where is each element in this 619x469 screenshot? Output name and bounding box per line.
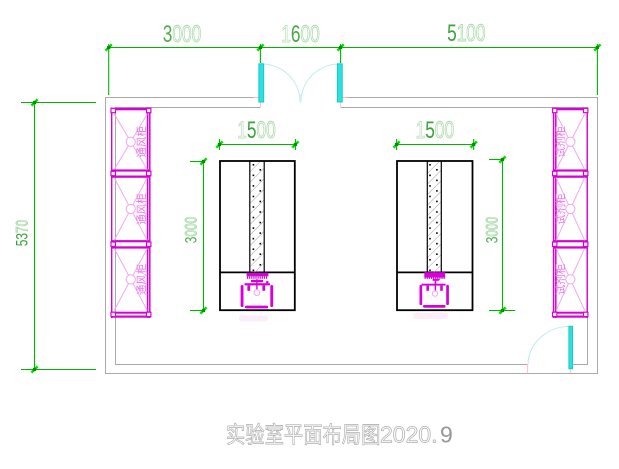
svg-text:3000: 3000 xyxy=(484,217,502,243)
svg-text:通风柜: 通风柜 xyxy=(135,126,148,158)
svg-text:1500: 1500 xyxy=(237,117,275,143)
svg-text:3000: 3000 xyxy=(163,21,201,47)
svg-text:试剂柜: 试剂柜 xyxy=(554,126,567,158)
svg-text:1600: 1600 xyxy=(281,21,319,47)
svg-text:通风柜: 通风柜 xyxy=(135,264,148,296)
svg-text:试剂柜: 试剂柜 xyxy=(554,264,567,296)
svg-text:3000: 3000 xyxy=(183,217,201,243)
svg-text:实验室平面布局图: 实验室平面布局图 xyxy=(226,422,380,448)
svg-text:试剂柜: 试剂柜 xyxy=(554,193,567,225)
svg-text:2020.: 2020. xyxy=(380,422,438,448)
svg-text:5100: 5100 xyxy=(447,20,485,46)
svg-text:9: 9 xyxy=(440,422,453,448)
svg-text:1500: 1500 xyxy=(416,117,454,143)
svg-text:5370: 5370 xyxy=(14,220,32,246)
svg-text:通风柜: 通风柜 xyxy=(135,193,148,225)
